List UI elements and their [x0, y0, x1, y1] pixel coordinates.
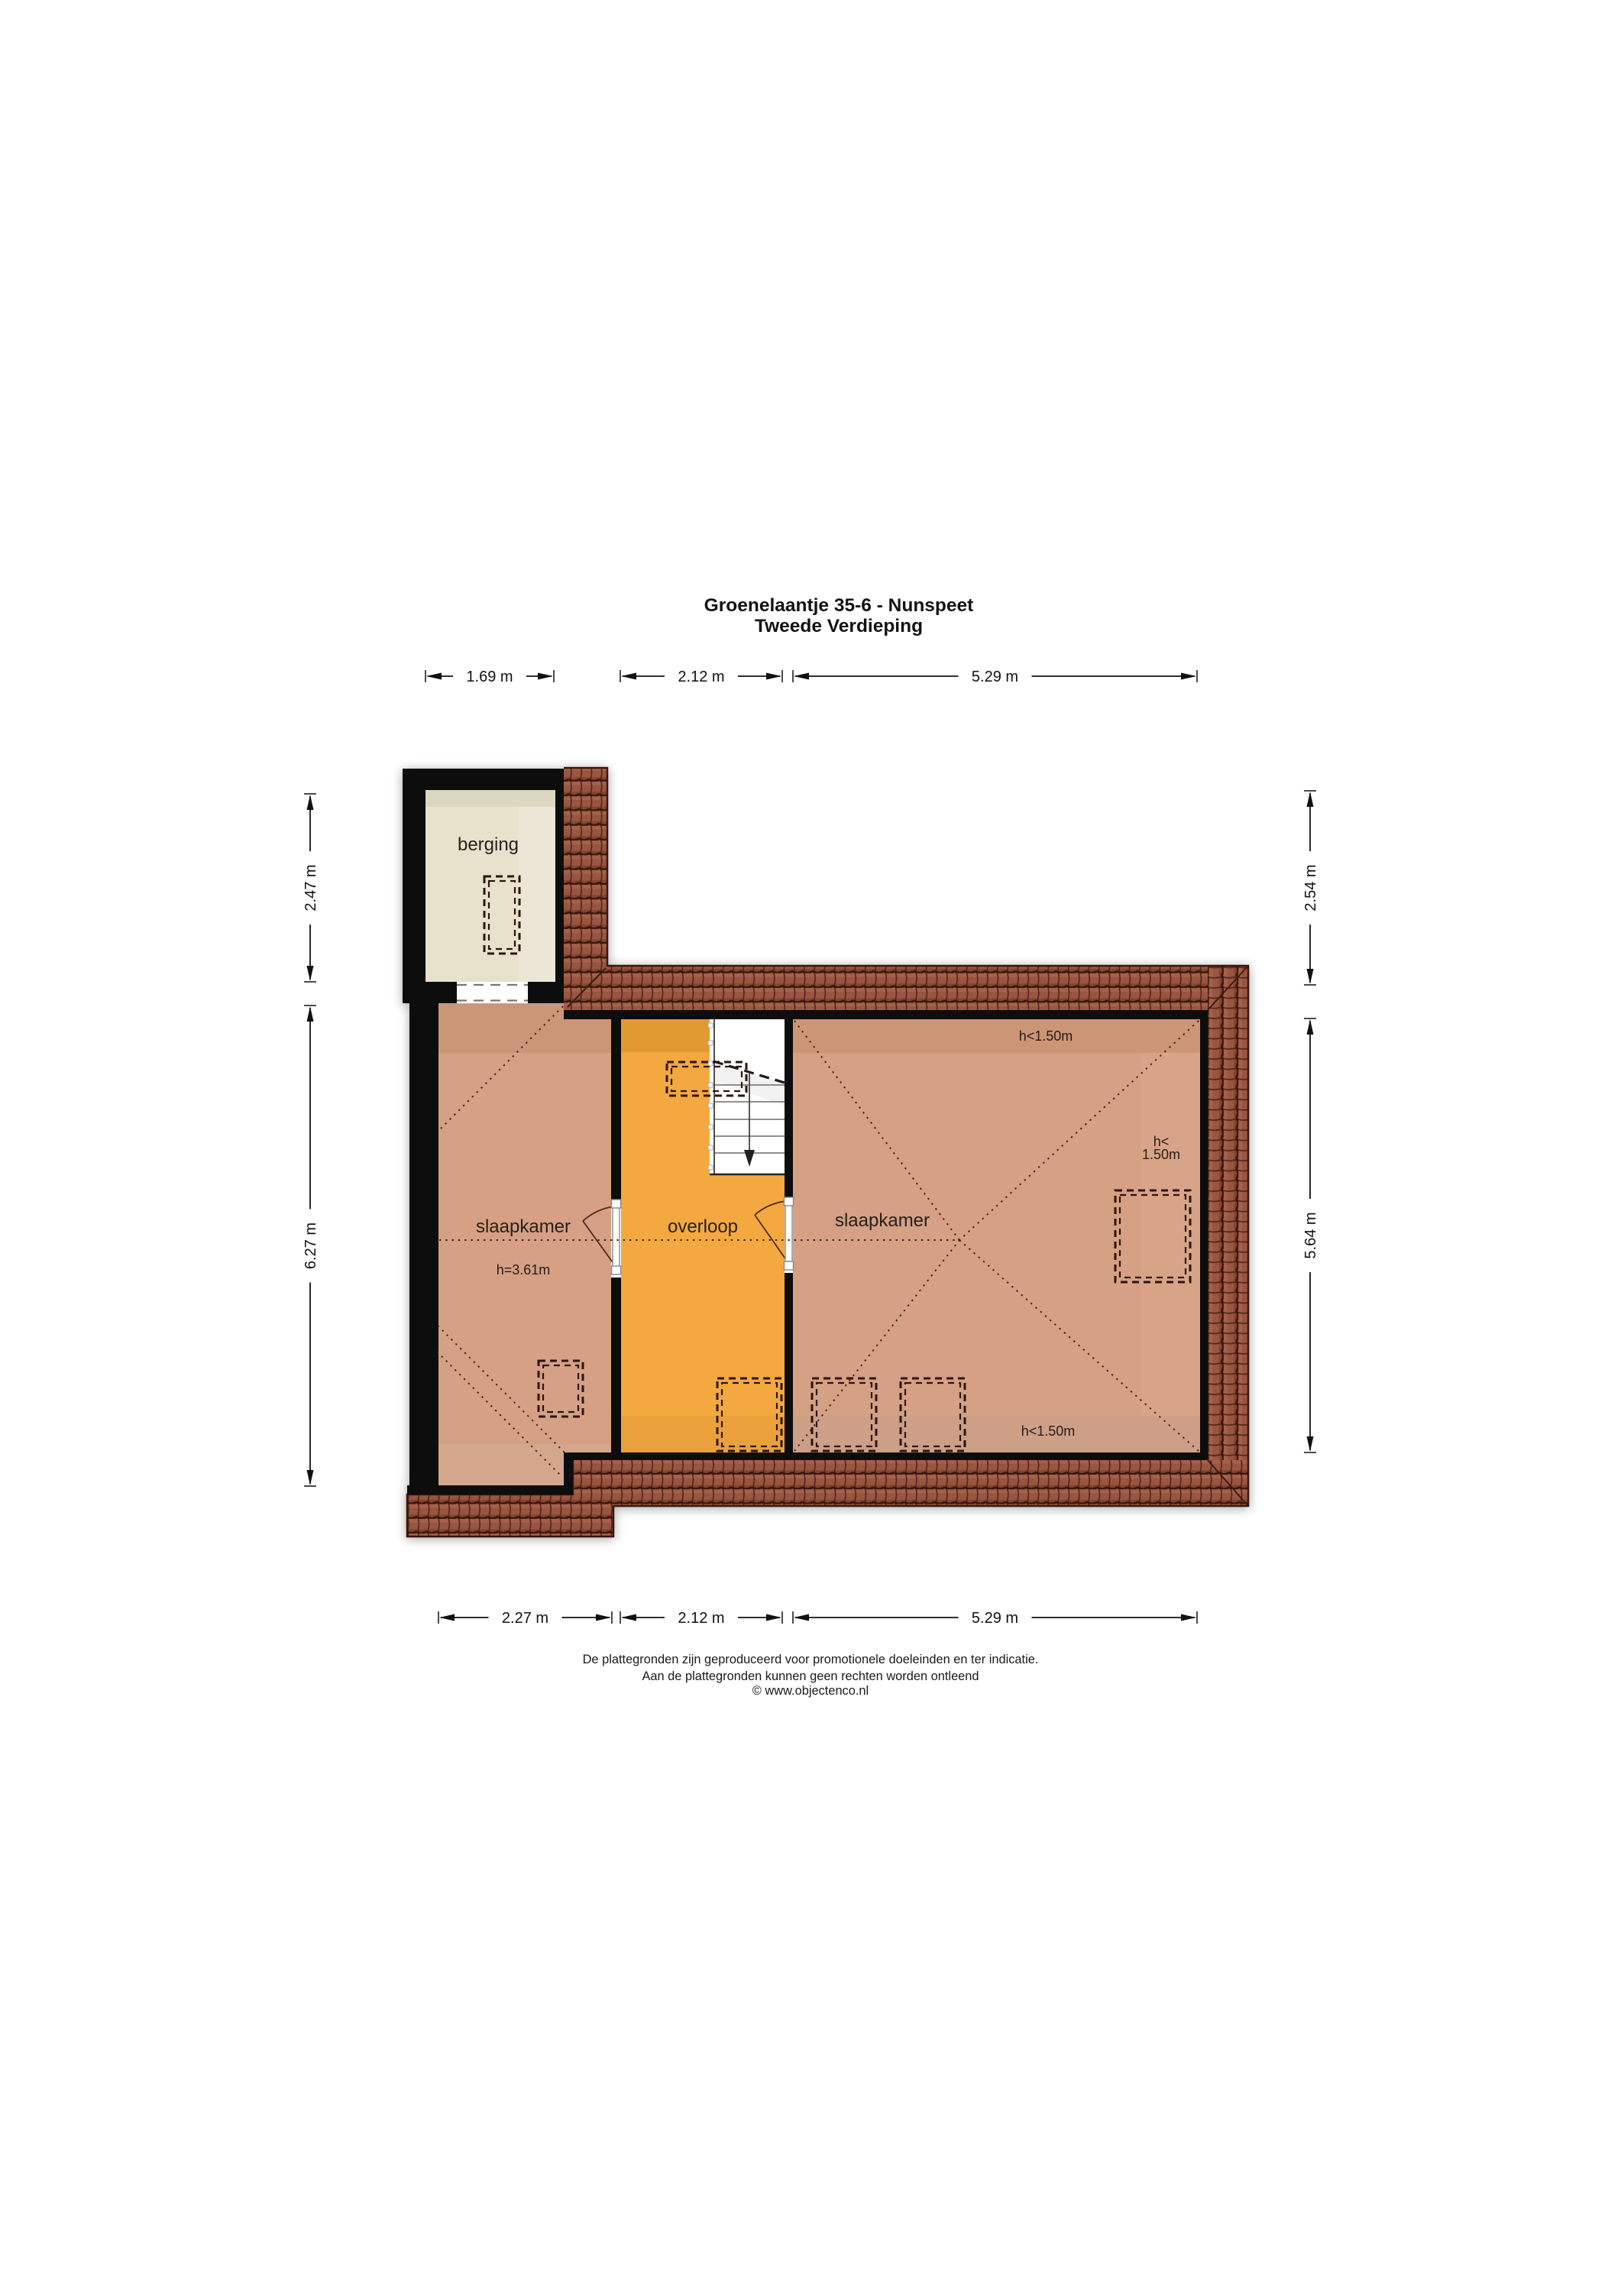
svg-text:h<1.50m: h<1.50m: [1021, 1423, 1076, 1439]
svg-text:2.54 m: 2.54 m: [1302, 864, 1319, 911]
svg-text:1.69 m: 1.69 m: [466, 669, 513, 685]
svg-text:6.27 m: 6.27 m: [303, 1222, 319, 1269]
svg-text:5.29 m: 5.29 m: [972, 669, 1018, 685]
svg-text:h=3.61m: h=3.61m: [497, 1262, 551, 1278]
svg-text:5.64 m: 5.64 m: [1302, 1212, 1319, 1258]
svg-text:2.12 m: 2.12 m: [678, 1610, 724, 1627]
svg-text:berging: berging: [458, 834, 519, 855]
svg-text:Aan de plattegronden kunnen ge: Aan de plattegronden kunnen geen rechten…: [642, 1669, 979, 1683]
svg-text:© www.objectenco.nl: © www.objectenco.nl: [752, 1684, 869, 1698]
svg-text:Groenelaantje 35-6 - Nunspeet: Groenelaantje 35-6 - Nunspeet: [704, 595, 974, 616]
svg-text:2.47 m: 2.47 m: [303, 864, 319, 911]
svg-text:h<1.50m: h<1.50m: [1019, 1028, 1073, 1044]
svg-text:1.50m: 1.50m: [1142, 1147, 1180, 1162]
svg-text:5.29 m: 5.29 m: [972, 1610, 1018, 1627]
svg-text:De plattegronden zijn geproduc: De plattegronden zijn geproduceerd voor …: [583, 1653, 1039, 1666]
svg-text:slaapkamer: slaapkamer: [476, 1216, 571, 1237]
svg-text:Tweede Verdieping: Tweede Verdieping: [755, 616, 923, 636]
svg-text:2.27 m: 2.27 m: [502, 1610, 548, 1627]
svg-text:overloop: overloop: [668, 1216, 738, 1237]
svg-text:2.12 m: 2.12 m: [678, 669, 724, 685]
svg-text:slaapkamer: slaapkamer: [835, 1210, 930, 1231]
